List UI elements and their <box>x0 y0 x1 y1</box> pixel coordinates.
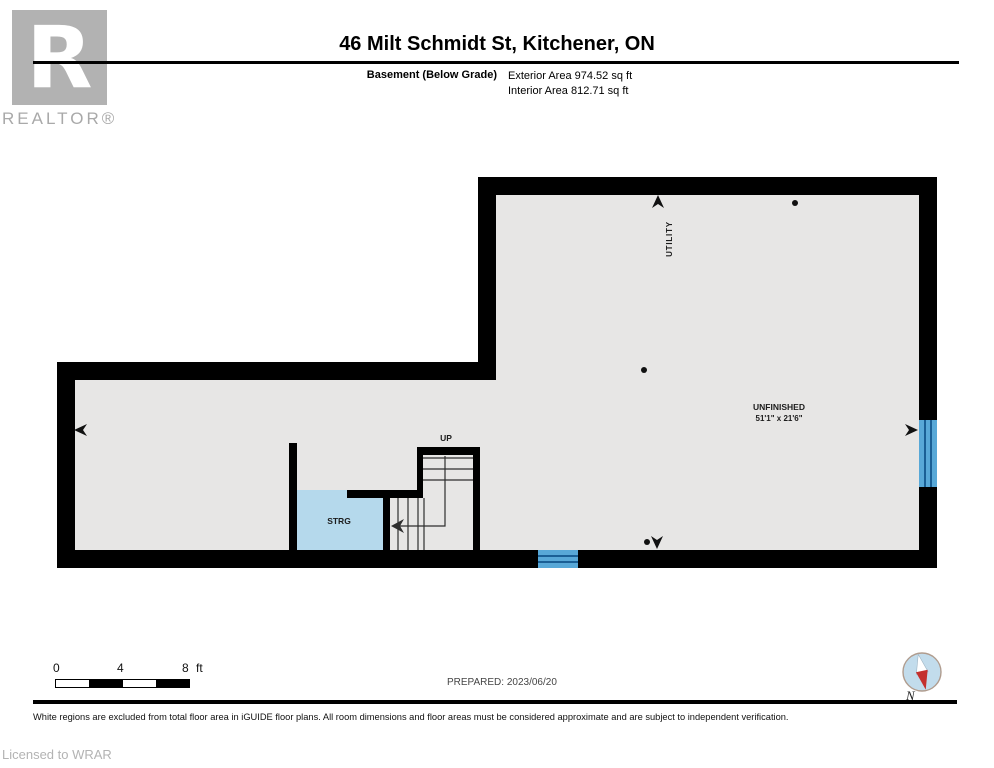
scale-label-4: 4 <box>117 661 124 675</box>
room-label-storage: STRG <box>327 516 351 526</box>
scale-bar-segment <box>89 680 122 687</box>
room-label-utility: UTILITY <box>665 221 674 257</box>
stair-right-wall <box>473 447 480 550</box>
stairs-up-label: UP <box>440 433 452 443</box>
stair-lower-left-wall <box>383 498 390 550</box>
footer-rule <box>33 700 957 704</box>
scale-bar-segment <box>56 680 89 687</box>
scale-bar-segment <box>156 680 189 687</box>
scale-bar-track <box>55 679 190 688</box>
floor-plan: UTILITY UNFINISHED 51'1" x 21'6" STRG UP <box>0 0 994 768</box>
storage-top-wall <box>347 490 423 498</box>
scale-label-8: 8 <box>182 661 189 675</box>
prepared-date: PREPARED: 2023/06/20 <box>447 677 557 688</box>
window-bottom <box>538 550 578 568</box>
floor-plan-page: R REALTOR® 46 Milt Schmidt St, Kitchener… <box>0 0 994 768</box>
scale-bar-segment <box>123 680 156 687</box>
room-dims-unfinished: 51'1" x 21'6" <box>756 414 803 423</box>
window-right <box>919 420 937 487</box>
dot-marker-bottom <box>644 539 650 545</box>
storage-left-wall <box>289 443 297 550</box>
scale-label-0: 0 <box>53 661 60 675</box>
license-text: Licensed to WRAR <box>2 747 112 762</box>
dot-marker-top <box>792 200 798 206</box>
scale-unit: ft <box>196 661 203 675</box>
scale-bar: 0 4 8 ft <box>55 661 225 695</box>
stair-left-wall <box>417 455 423 490</box>
disclaimer-text: White regions are excluded from total fl… <box>33 712 973 722</box>
dot-marker-middle <box>641 367 647 373</box>
room-label-unfinished: UNFINISHED <box>753 402 805 412</box>
stair-top-wall <box>417 447 480 455</box>
